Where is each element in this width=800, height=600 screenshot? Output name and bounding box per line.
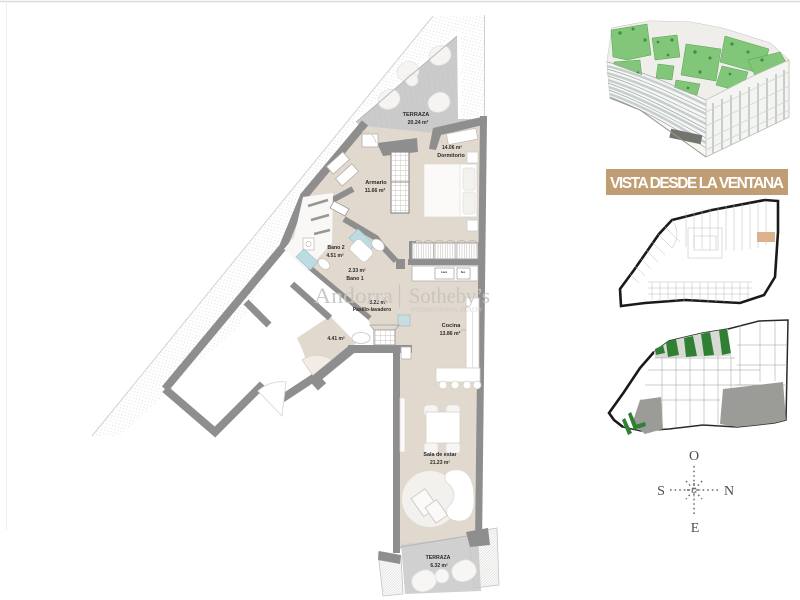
svg-text:Andorra: Andorra	[314, 283, 393, 308]
svg-text:Lava: Lava	[441, 270, 447, 274]
svg-text:TERRAZA: TERRAZA	[426, 555, 451, 561]
svg-text:Bano 2: Bano 2	[327, 245, 344, 251]
svg-text:6.32 m²: 6.32 m²	[430, 563, 448, 569]
svg-text:4.51 m²: 4.51 m²	[326, 253, 344, 259]
svg-text:11.66 m²: 11.66 m²	[365, 188, 386, 194]
svg-text:21.23 m²: 21.23 m²	[430, 460, 450, 466]
svg-text:E: E	[691, 521, 700, 536]
svg-text:Sotheby’s: Sotheby’s	[409, 283, 490, 308]
svg-text:4.41 m²: 4.41 m²	[327, 336, 345, 342]
svg-text:N: N	[724, 484, 734, 499]
svg-text:TERRAZA: TERRAZA	[403, 112, 430, 118]
svg-text:14.06 m²: 14.06 m²	[442, 145, 462, 151]
svg-text:S: S	[657, 484, 665, 499]
svg-text:O: O	[689, 449, 699, 464]
svg-text:Sec: Sec	[461, 270, 466, 274]
svg-text:Bano 1: Bano 1	[346, 276, 363, 282]
svg-text:INTERNATIONAL REALTY: INTERNATIONAL REALTY	[411, 308, 484, 314]
svg-text:2.33 m²: 2.33 m²	[348, 268, 366, 274]
svg-text:Dormitorio: Dormitorio	[437, 153, 465, 159]
svg-text:VISTA DESDE LA VENTANA: VISTA DESDE LA VENTANA	[610, 175, 784, 192]
svg-text:20.24 m²: 20.24 m²	[408, 120, 429, 126]
svg-text:13.86 m²: 13.86 m²	[440, 331, 461, 337]
svg-text:|: |	[397, 281, 402, 308]
svg-text:Cocina: Cocina	[442, 323, 462, 329]
svg-text:Sala de estar: Sala de estar	[423, 452, 457, 458]
svg-text:Armario: Armario	[365, 180, 387, 186]
